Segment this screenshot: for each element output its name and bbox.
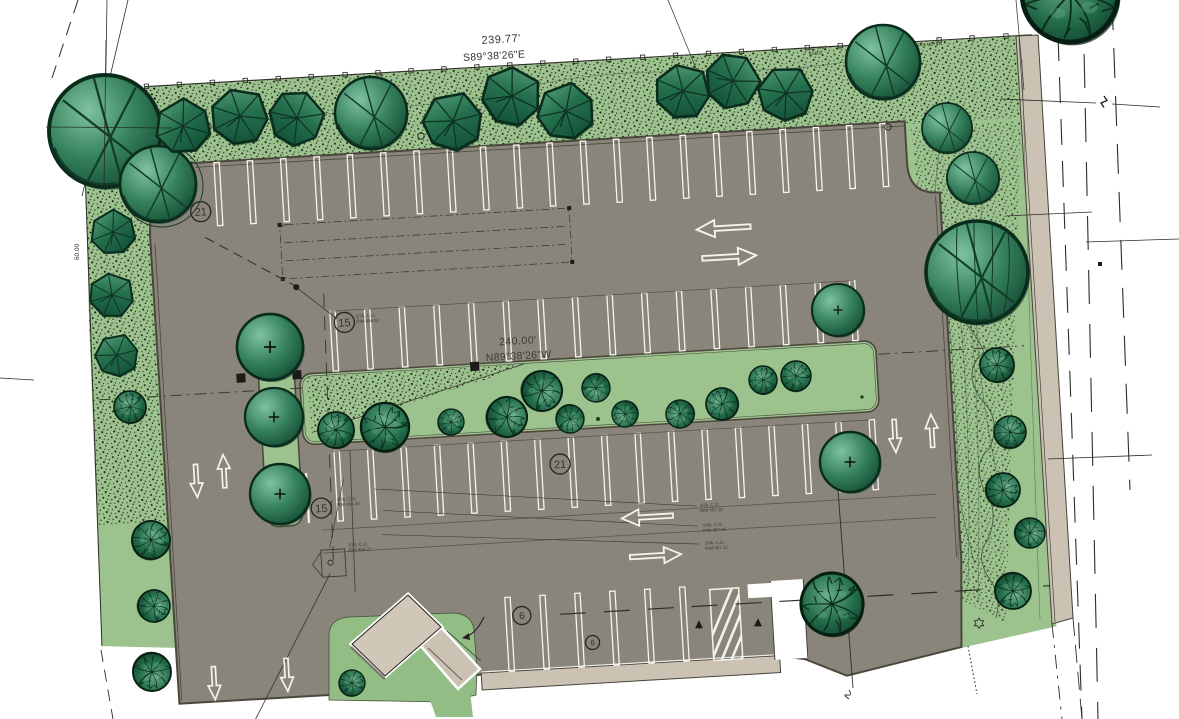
svg-text:21: 21 bbox=[554, 459, 567, 472]
svg-text:15: 15 bbox=[315, 503, 328, 516]
svg-text:938.66: 938.66 bbox=[808, 50, 822, 56]
svg-text:60.00: 60.00 bbox=[74, 243, 81, 260]
svg-text:240.00': 240.00' bbox=[499, 334, 537, 348]
svg-text:239.77': 239.77' bbox=[481, 33, 521, 47]
svg-text:6: 6 bbox=[519, 611, 526, 622]
svg-text:15: 15 bbox=[338, 317, 351, 330]
